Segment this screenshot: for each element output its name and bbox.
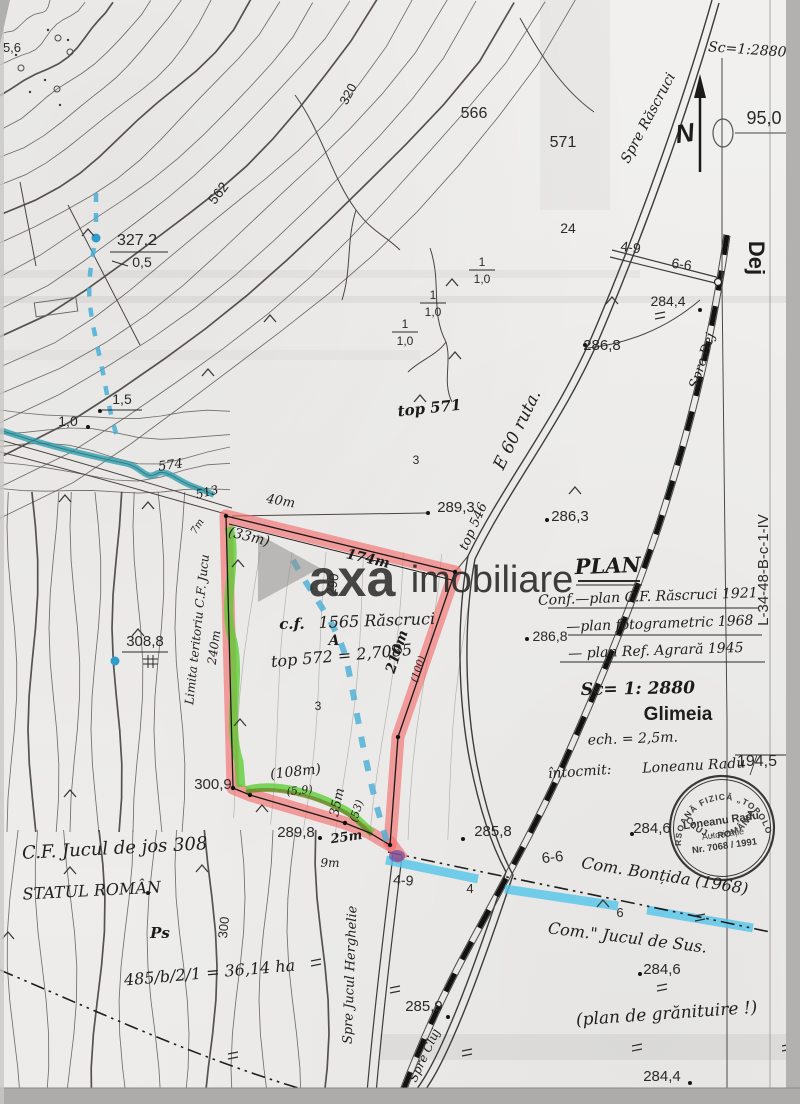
slope-chevron: [449, 352, 461, 359]
label-glimeia: Glimeia: [644, 704, 713, 725]
label-108m: (108m): [269, 761, 321, 782]
meadow-mark: [390, 986, 400, 993]
label-5-9: (5,9): [286, 783, 313, 799]
watermark: axaimobiliare: [258, 534, 573, 608]
label-6: 6: [616, 905, 623, 920]
boundary-sw: [0, 970, 312, 1092]
meadow-mark: [655, 312, 665, 319]
label-com-bon-ida-1968: Com. Bonțida (1968): [580, 853, 749, 898]
label-spre-r-scruci: Spre Răscruci: [618, 70, 679, 166]
label-6-6: 6-6: [541, 848, 564, 867]
label-289-8: 289,8: [277, 824, 315, 841]
contours-topleft: [0, 0, 576, 518]
scanned-cadastral-plan: axaimobiliare5,6562327,20,5320566571244-…: [0, 0, 800, 1104]
label-25m: 25m: [329, 828, 364, 847]
survey-dot: [461, 837, 465, 841]
page-corner-fold: [0, 0, 10, 44]
blue-point: [111, 657, 120, 666]
label-40m: 40m: [264, 491, 296, 511]
label-320: 320: [336, 81, 359, 107]
label-ech-2-5m: ech. = 2,5m.: [587, 729, 678, 748]
herghelie-road: [366, 855, 393, 1104]
fraction-denominator: 1,0: [474, 272, 491, 286]
cyan-highlight: [647, 910, 753, 928]
label-286-8: 286,8: [583, 337, 621, 354]
slope-chevron: [64, 867, 76, 874]
label-loneanu-radu: Loneanu Radu: [641, 755, 746, 776]
label-566: 566: [461, 105, 488, 122]
label-sc-1-2880: Sc=1:2880: [708, 39, 787, 60]
label-limita-teritoriu-c-f-jucu: Limita teritoriu C.F. Jucu: [182, 554, 212, 707]
north-letter: N: [673, 117, 697, 149]
label-7m: 7m: [189, 517, 207, 536]
label-284-4: 284,4: [643, 1068, 681, 1085]
label-9m: 9m: [320, 856, 339, 870]
label-308-8: 308,8: [126, 633, 164, 650]
fraction-numerator: 1: [430, 288, 437, 302]
label-1-0: 1,0: [58, 413, 78, 429]
label-statul-rom-n: STATUL ROMÂN: [22, 876, 162, 903]
label-327-2: 327,2: [117, 232, 157, 249]
fraction-denominator: 1,0: [425, 305, 442, 319]
scan-artifacts: [0, 0, 800, 1060]
survey-dot: [545, 518, 549, 522]
label-574: 574: [157, 456, 184, 474]
label-c-f: c.f.: [279, 615, 305, 633]
label-284-6: 284,6: [633, 820, 671, 837]
slope-chevron: [569, 487, 581, 494]
page-edge-right: [786, 0, 800, 1104]
meadow-mark: [228, 1052, 238, 1059]
survey-dot: [426, 511, 430, 515]
survey-dot: [318, 836, 322, 840]
survey-dot: [86, 425, 90, 429]
label-286-3: 286,3: [551, 508, 589, 525]
survey-dot: [525, 637, 529, 641]
label-ps: Ps: [149, 924, 170, 942]
meadow-mark: [311, 959, 321, 966]
stream: [0, 193, 214, 495]
label-571: 571: [550, 134, 577, 151]
label-6-6: 6-6: [671, 255, 693, 274]
label-c-f-jucul-de-jos-308: C.F. Jucul de jos 308: [22, 833, 208, 864]
label-spre-dej: Spre Dej: [687, 331, 719, 390]
page-edge-left: [0, 0, 4, 1104]
label-5-6: 5,6: [3, 40, 21, 55]
north-arrow: N: [673, 74, 706, 172]
slope-chevron: [142, 502, 154, 509]
label-284-6: 284,6: [643, 961, 681, 978]
fraction-denominator: 1,0: [397, 334, 414, 348]
label-3: 3: [315, 699, 322, 713]
survey-dot: [688, 1081, 692, 1085]
label-plan-ref-agrar-1945: — plan Ref. Agrară 1945: [568, 640, 744, 662]
label-l-34-48-b-c-1-iv: L-34-48-B-c-1-IV: [755, 514, 772, 626]
label-plan: PLAN: [573, 552, 642, 579]
benchmark-ellipse: [713, 119, 733, 147]
label-285-8: 285,8: [474, 823, 512, 840]
label-285-9: 285,9: [405, 998, 443, 1015]
slope-chevron: [446, 279, 458, 286]
fraction-numerator: 1: [402, 317, 409, 331]
slope-chevron: [64, 790, 76, 797]
map-canvas: axaimobiliare5,6562327,20,5320566571244-…: [0, 0, 800, 1104]
label-300-9: 300,9: [194, 776, 232, 793]
label-spre-jucul-herghelie: Spre Jucul Herghelie: [341, 905, 361, 1044]
meadow-mark: [657, 984, 667, 991]
label-dej: Dej: [744, 241, 769, 275]
label-com-jucul-de-sus: Com." Jucul de Sus.: [547, 918, 708, 956]
cyan-highlight: [505, 889, 618, 906]
slope-chevron: [202, 369, 214, 376]
label-plan-de-gr-nituire: (plan de grănituire !): [575, 998, 758, 1031]
label-286-8: 286,8: [532, 628, 567, 644]
label-4: 4: [466, 881, 473, 896]
tree-symbol: [18, 65, 24, 71]
label-95-0: 95,0: [746, 108, 781, 128]
label-24: 24: [560, 220, 576, 236]
label-300: 300: [215, 916, 232, 939]
survey-dot: [446, 1015, 450, 1019]
label-289-3: 289,3: [437, 499, 475, 516]
survey-dot: [98, 409, 102, 413]
survey-dot: [698, 308, 702, 312]
junction-blob: [389, 850, 405, 862]
slope-chevron: [196, 865, 208, 872]
fraction-numerator: 1: [479, 255, 486, 269]
label-0-5: 0,5: [132, 254, 152, 270]
label-4-9: 4-9: [393, 871, 415, 888]
label-4-9: 4-9: [620, 238, 642, 257]
label-e-60-ruta: E 60 ruta.: [489, 387, 545, 474]
label-ntocmit: întocmit:: [547, 762, 611, 782]
label-1565-r-scruci: 1565 Răscruci: [318, 609, 435, 632]
tree-symbol: [55, 35, 61, 41]
survey-dot: [638, 972, 642, 976]
label-485-b-2-1-36-14-ha: 485/b/2/1 = 36,14 ha: [122, 956, 296, 990]
label-sc-1-2880: Sc= 1: 2880: [581, 678, 696, 700]
label-240m: 240m: [205, 629, 224, 666]
page-edge-bottom: [0, 1088, 800, 1104]
label-top-571: top 571: [397, 396, 462, 421]
label-3: 3: [413, 453, 420, 467]
label-1-5: 1,5: [112, 391, 132, 407]
label-284-4: 284,4: [650, 293, 685, 309]
slope-chevron: [59, 495, 71, 502]
